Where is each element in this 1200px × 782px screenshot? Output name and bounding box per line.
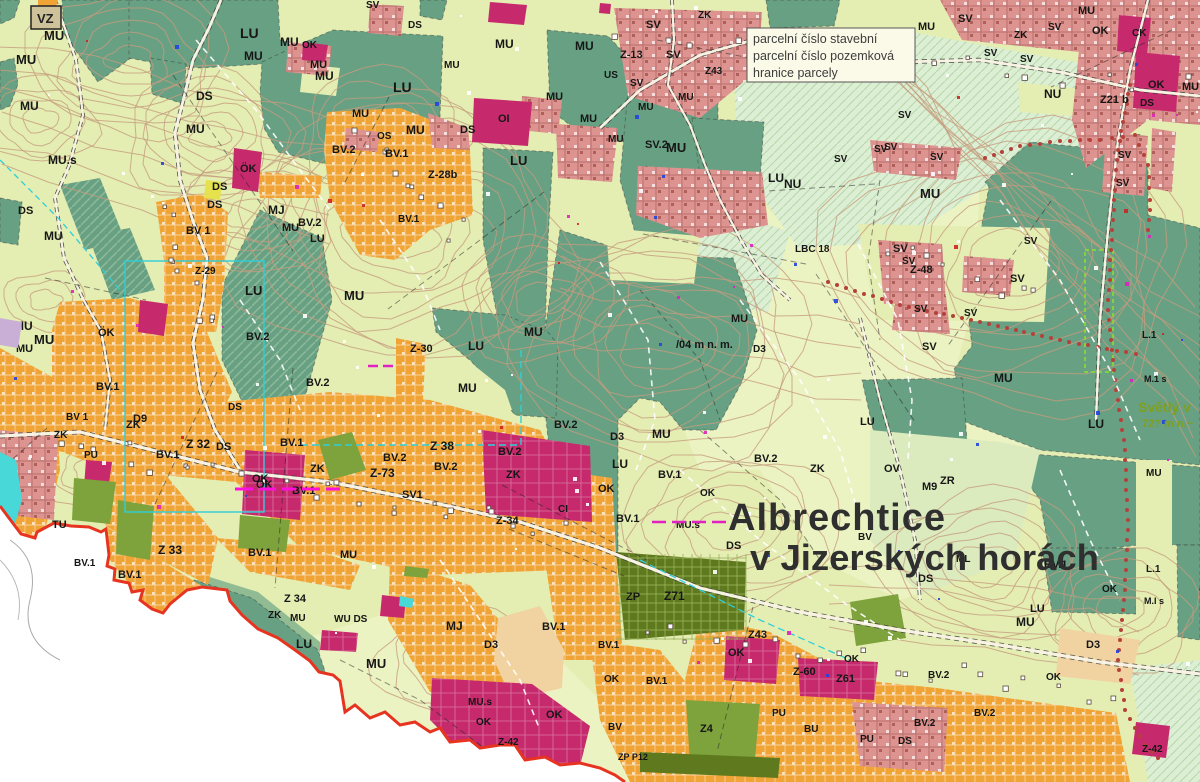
- svg-text:BV.1: BV.1: [96, 381, 119, 393]
- svg-text:BV.1: BV.1: [598, 640, 620, 651]
- svg-text:MU: MU: [920, 186, 940, 201]
- svg-text:MU: MU: [918, 21, 935, 33]
- svg-text:SV: SV: [964, 308, 978, 319]
- svg-text:OK: OK: [1046, 672, 1062, 683]
- svg-text:BV.2: BV.2: [246, 331, 269, 343]
- svg-text:Z43: Z43: [705, 66, 723, 77]
- svg-text:D3: D3: [484, 639, 498, 651]
- svg-text:DS: DS: [196, 89, 213, 103]
- svg-text:LBC 18: LBC 18: [795, 244, 830, 255]
- svg-text:MU: MU: [994, 371, 1013, 385]
- svg-text:OK: OK: [302, 40, 318, 51]
- svg-text:DS: DS: [726, 540, 741, 552]
- svg-text:MU: MU: [731, 313, 748, 325]
- svg-text:SV: SV: [1020, 54, 1034, 65]
- svg-text:DS: DS: [18, 205, 33, 217]
- svg-text:ÖK: ÖK: [98, 326, 115, 339]
- svg-text:MU: MU: [16, 52, 36, 67]
- svg-text:LU: LU: [393, 79, 412, 95]
- svg-text:SV: SV: [984, 48, 998, 59]
- svg-text:BV.2: BV.2: [298, 217, 321, 229]
- svg-text:ZK: ZK: [126, 419, 141, 431]
- svg-text:MU: MU: [580, 113, 597, 125]
- svg-text:PU: PU: [772, 708, 786, 719]
- svg-text:CI: CI: [558, 504, 568, 515]
- svg-text:BV.1: BV.1: [292, 485, 315, 497]
- svg-text:BV 1: BV 1: [186, 225, 210, 237]
- svg-text:MU: MU: [34, 332, 54, 347]
- svg-text:DS: DS: [460, 124, 475, 136]
- svg-text:BV.1: BV.1: [385, 148, 408, 160]
- svg-text:parcelní číslo stavební: parcelní číslo stavební: [753, 32, 878, 46]
- svg-text:SV: SV: [1118, 150, 1132, 161]
- svg-text:LU: LU: [245, 283, 262, 298]
- svg-text:MU: MU: [1078, 5, 1095, 17]
- svg-text:ZK: ZK: [268, 610, 282, 621]
- svg-text:OK: OK: [598, 483, 615, 495]
- svg-text:OK: OK: [1102, 584, 1118, 595]
- svg-text:L.1: L.1: [1146, 564, 1161, 575]
- svg-text:ZK: ZK: [54, 430, 68, 441]
- svg-text:MU: MU: [344, 288, 364, 303]
- svg-text:OK: OK: [546, 709, 563, 721]
- svg-text:L.1: L.1: [1142, 330, 1157, 341]
- svg-text:MU.s: MU.s: [468, 697, 492, 708]
- svg-text:Z 32: Z 32: [186, 437, 210, 451]
- svg-text:M.1 s: M.1 s: [1144, 374, 1167, 384]
- svg-text:Z-34: Z-34: [496, 515, 520, 527]
- svg-text:SV: SV: [666, 49, 681, 61]
- svg-text:BV: BV: [608, 722, 622, 733]
- svg-text:MU: MU: [366, 656, 386, 671]
- svg-text:BV.1: BV.1: [118, 569, 141, 581]
- svg-text:MJ: MJ: [268, 203, 285, 217]
- svg-text:OK: OK: [476, 717, 492, 728]
- svg-text:MU: MU: [638, 102, 654, 113]
- svg-text:SV: SV: [922, 341, 937, 353]
- svg-text:BV.1: BV.1: [248, 547, 271, 559]
- svg-text:VZ: VZ: [37, 11, 54, 26]
- svg-text:Světlý v: Světlý v: [1138, 399, 1191, 415]
- svg-text:MU: MU: [340, 549, 357, 561]
- svg-text:BV.2: BV.2: [434, 461, 457, 473]
- svg-text:M9: M9: [922, 481, 937, 493]
- svg-text:/04 m n. m.: /04 m n. m.: [676, 339, 733, 351]
- svg-text:DS: DS: [408, 20, 422, 31]
- svg-text:BV.1: BV.1: [542, 621, 565, 633]
- svg-text:Z-29: Z-29: [195, 266, 216, 277]
- svg-text:LU: LU: [1088, 417, 1104, 431]
- svg-text:MU: MU: [44, 28, 64, 43]
- svg-text:MU: MU: [352, 108, 369, 120]
- svg-text:BV.1: BV.1: [646, 676, 668, 687]
- svg-text:OS: OS: [377, 131, 392, 142]
- svg-text:MU: MU: [20, 99, 39, 113]
- svg-text:Z-13: Z-13: [620, 49, 643, 61]
- svg-text:BV.2: BV.2: [306, 377, 329, 389]
- svg-text:BV.2: BV.2: [914, 718, 936, 729]
- svg-text:SV: SV: [914, 304, 928, 315]
- svg-text:BV.2: BV.2: [554, 419, 577, 431]
- svg-text:ZK: ZK: [310, 463, 325, 475]
- svg-text:MU: MU: [244, 49, 263, 63]
- svg-text:MJ: MJ: [446, 619, 463, 633]
- svg-text:parcelní číslo pozemková: parcelní číslo pozemková: [753, 49, 894, 63]
- svg-text:M.I s: M.I s: [1144, 596, 1164, 606]
- svg-text:SV: SV: [1116, 178, 1130, 189]
- svg-text:BV.2: BV.2: [754, 453, 777, 465]
- svg-text:ÖK: ÖK: [240, 162, 257, 175]
- svg-text:DS: DS: [207, 199, 222, 211]
- svg-text:ZK: ZK: [1014, 30, 1028, 41]
- svg-text:WU DS: WU DS: [334, 614, 368, 625]
- svg-text:Z-60: Z-60: [793, 666, 816, 678]
- svg-text:v Jizerských horách: v Jizerských horách: [750, 537, 1099, 578]
- svg-text:MU: MU: [1146, 468, 1162, 479]
- svg-text:SV: SV: [893, 243, 908, 255]
- svg-text:MU: MU: [16, 343, 33, 355]
- svg-text:BV.2: BV.2: [928, 670, 950, 681]
- svg-text:MU: MU: [666, 140, 686, 155]
- svg-text:LU: LU: [296, 637, 312, 651]
- svg-text:MU: MU: [282, 222, 299, 234]
- svg-text:SV: SV: [1024, 236, 1038, 247]
- svg-text:DS: DS: [898, 736, 912, 747]
- svg-text:Z-28b: Z-28b: [428, 169, 458, 181]
- svg-text:NU: NU: [784, 177, 801, 191]
- svg-text:LU: LU: [310, 233, 325, 245]
- svg-text:LU: LU: [468, 339, 484, 353]
- svg-text:BV.1: BV.1: [616, 513, 639, 525]
- svg-text:SV: SV: [898, 110, 912, 121]
- svg-text:72? m n.~: 72? m n.~: [1142, 418, 1194, 430]
- svg-text:Z-42: Z-42: [498, 737, 519, 748]
- svg-text:OI: OI: [498, 113, 510, 125]
- svg-text:CK: CK: [1132, 28, 1147, 39]
- svg-text:MU: MU: [608, 134, 624, 145]
- svg-text:SV.2: SV.2: [645, 139, 668, 151]
- svg-text:BU: BU: [804, 724, 818, 735]
- svg-text:LU: LU: [1030, 603, 1045, 615]
- svg-text:PU: PU: [84, 450, 98, 461]
- svg-text:ZK: ZK: [810, 463, 825, 475]
- svg-text:BV.1: BV.1: [74, 558, 96, 569]
- svg-text:D3: D3: [610, 431, 624, 443]
- svg-text:ZK: ZK: [506, 469, 521, 481]
- svg-text:MU: MU: [1182, 81, 1199, 93]
- svg-text:Z21 b: Z21 b: [1100, 94, 1129, 106]
- svg-text:MU: MU: [678, 92, 694, 103]
- svg-text:ZP: ZP: [626, 591, 640, 603]
- svg-text:Z43: Z43: [748, 629, 767, 641]
- svg-text:SV: SV: [630, 78, 644, 89]
- svg-text:BV.1: BV.1: [398, 214, 420, 225]
- svg-text:BV.1: BV.1: [156, 449, 179, 461]
- svg-text:DS: DS: [228, 402, 242, 413]
- svg-text:BV.1: BV.1: [658, 469, 681, 481]
- svg-text:MU: MU: [186, 122, 205, 136]
- svg-text:OK: OK: [1092, 25, 1109, 37]
- svg-text:OK: OK: [844, 654, 860, 665]
- svg-text:DS: DS: [1140, 98, 1154, 109]
- svg-text:ZP P12: ZP P12: [618, 752, 648, 762]
- svg-text:MU.s: MU.s: [48, 153, 77, 167]
- svg-text:SV: SV: [902, 256, 916, 267]
- svg-text:SV1: SV1: [402, 489, 423, 501]
- svg-text:Z 34: Z 34: [284, 593, 307, 605]
- svg-text:MU: MU: [44, 229, 63, 243]
- svg-text:Z 38: Z 38: [430, 439, 454, 453]
- svg-text:Z-73: Z-73: [370, 466, 395, 480]
- svg-text:SV: SV: [834, 154, 848, 165]
- svg-text:MU: MU: [315, 69, 334, 83]
- svg-text:US: US: [604, 70, 618, 81]
- svg-text:SV: SV: [366, 0, 380, 11]
- svg-text:BV.1: BV.1: [280, 437, 303, 449]
- svg-text:MU: MU: [290, 613, 306, 624]
- svg-text:MU: MU: [280, 35, 299, 49]
- svg-text:BV.2: BV.2: [383, 452, 406, 464]
- svg-text:PU: PU: [860, 734, 874, 745]
- svg-text:MU: MU: [406, 123, 425, 137]
- svg-text:SV: SV: [1010, 273, 1025, 285]
- svg-text:SV: SV: [958, 13, 973, 25]
- svg-text:MU: MU: [1016, 615, 1035, 629]
- svg-text:BV.2: BV.2: [332, 144, 355, 156]
- svg-text:LU: LU: [768, 171, 784, 185]
- svg-text:ZR: ZR: [940, 475, 955, 487]
- svg-text:D3: D3: [753, 344, 766, 355]
- svg-text:MU: MU: [444, 60, 460, 71]
- svg-text:MU: MU: [524, 325, 543, 339]
- svg-text:SV: SV: [930, 152, 944, 163]
- svg-text:Z-42: Z-42: [1142, 744, 1163, 755]
- svg-text:NU: NU: [1044, 87, 1061, 101]
- svg-text:ZK: ZK: [698, 10, 712, 21]
- svg-text:OK: OK: [604, 674, 620, 685]
- svg-text:OV: OV: [884, 463, 901, 475]
- svg-text:SV: SV: [1048, 22, 1062, 33]
- svg-text:MU: MU: [652, 427, 671, 441]
- svg-text:Albrechtice: Albrechtice: [728, 497, 946, 539]
- svg-text:DS: DS: [212, 181, 227, 193]
- svg-text:Z61: Z61: [836, 673, 855, 685]
- svg-text:OK: OK: [700, 488, 716, 499]
- svg-text:SV: SV: [874, 144, 888, 155]
- svg-text:DS: DS: [216, 441, 231, 453]
- svg-text:OK: OK: [1148, 79, 1165, 91]
- svg-text:MU: MU: [458, 381, 477, 395]
- svg-text:D3: D3: [1086, 639, 1100, 651]
- svg-text:SV: SV: [646, 19, 661, 31]
- svg-text:LU: LU: [860, 416, 875, 428]
- svg-text:Z-30: Z-30: [410, 343, 433, 355]
- svg-text:BV.2: BV.2: [498, 446, 521, 458]
- svg-text:MU: MU: [495, 37, 514, 51]
- svg-text:Z4: Z4: [700, 723, 714, 735]
- svg-text:hranice parcely: hranice parcely: [753, 66, 839, 80]
- svg-text:LU: LU: [240, 25, 259, 41]
- svg-text:BV.2: BV.2: [974, 708, 996, 719]
- svg-text:BV 1: BV 1: [66, 412, 89, 423]
- svg-text:TU: TU: [52, 519, 67, 531]
- svg-text:MU: MU: [575, 39, 594, 53]
- svg-text:Z71: Z71: [664, 589, 685, 603]
- svg-text:LU: LU: [510, 153, 527, 168]
- svg-text:MU: MU: [546, 91, 563, 103]
- svg-text:LU: LU: [612, 457, 628, 471]
- svg-text:Z 33: Z 33: [158, 543, 182, 557]
- svg-text:OK: OK: [728, 647, 745, 659]
